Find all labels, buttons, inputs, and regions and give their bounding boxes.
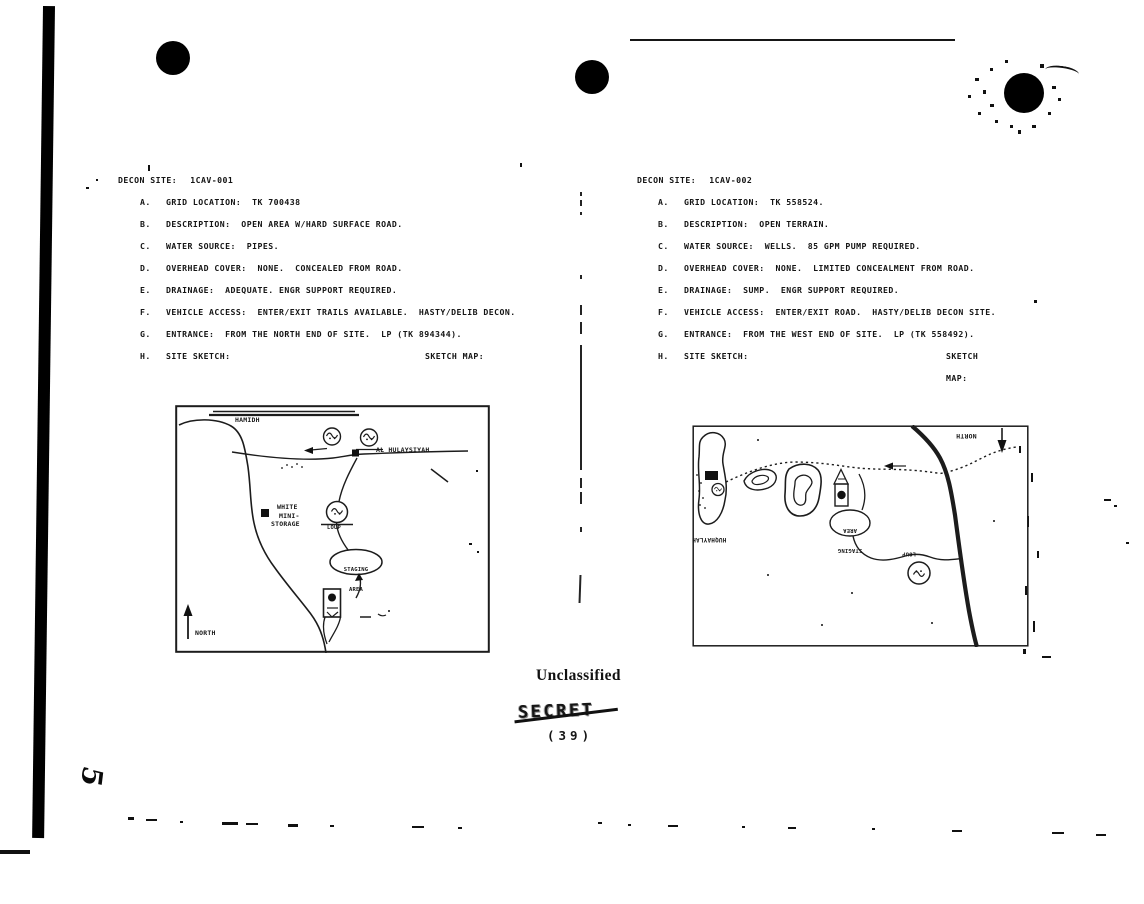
hole-punch	[1004, 73, 1044, 113]
item-letter: F.	[658, 301, 684, 323]
contour-outline	[785, 464, 821, 516]
fold-line	[579, 575, 582, 603]
site-item: C.WATER SOURCE: WELLS. 85 GPM PUMP REQUI…	[637, 235, 996, 257]
site-header-label: DECON SITE:	[118, 169, 177, 191]
item-letter: A.	[658, 191, 684, 213]
fold-line	[580, 305, 582, 315]
scan-speck	[1048, 112, 1051, 115]
direction-arrow-icon	[884, 463, 906, 470]
town-label: AL HULAYSIYAH	[376, 446, 429, 454]
handwritten-mark: 5	[74, 763, 109, 790]
town-label: HUQHAYLAH	[692, 535, 726, 543]
scan-dash	[668, 825, 678, 827]
item-letter: E.	[140, 279, 166, 301]
site-item: B.DESCRIPTION: OPEN TERRAIN.	[637, 213, 996, 235]
scan-speck	[388, 610, 390, 612]
scan-dash	[288, 824, 298, 827]
site-item: F.VEHICLE ACCESS: ENTER/EXIT TRAILS AVAI…	[118, 301, 516, 323]
site-header: DECON SITE: 1CAV-002	[637, 169, 996, 191]
site-header-value: 1CAV-001	[190, 169, 233, 191]
site-item: E.DRAINAGE: ADEQUATE. ENGR SUPPORT REQUI…	[118, 279, 516, 301]
scan-speck	[1114, 505, 1117, 507]
scan-dash	[872, 828, 875, 830]
decon-site-1cav-002: DECON SITE: 1CAV-002 A.GRID LOCATION: TK…	[637, 169, 996, 367]
item-letter: F.	[140, 301, 166, 323]
site-road	[339, 458, 357, 502]
item-text: ENTRANCE: FROM THE WEST END OF SITE. LP …	[684, 323, 974, 345]
site-item: E.DRAINAGE: SUMP. ENGR SUPPORT REQUIRED.	[637, 279, 996, 301]
scan-speck	[1034, 300, 1037, 303]
road-name-label: HAMIDH	[235, 416, 260, 424]
site-header-value: 1CAV-002	[709, 169, 752, 191]
fold-line	[580, 492, 582, 504]
site-item: G.ENTRANCE: FROM THE WEST END OF SITE. L…	[637, 323, 996, 345]
scan-dash	[1096, 834, 1106, 836]
page-rule-line	[630, 39, 955, 41]
hole-punch	[575, 60, 609, 94]
fold-line	[580, 212, 582, 215]
scan-dash	[742, 826, 745, 828]
site-item: H.SITE SKETCH:SKETCH MAP:	[118, 345, 516, 367]
fold-line	[580, 322, 582, 334]
item-text: VEHICLE ACCESS: ENTER/EXIT TRAILS AVAILA…	[166, 301, 516, 323]
site-road	[859, 474, 865, 510]
building-marker-icon	[705, 471, 718, 480]
scan-speck	[1052, 86, 1056, 89]
scan-dash	[330, 825, 334, 827]
item-letter: H.	[140, 345, 166, 367]
scan-speck	[96, 179, 98, 181]
road-scribble	[281, 463, 303, 469]
site-item: C.WATER SOURCE: PIPES.	[118, 235, 516, 257]
scan-speck	[86, 187, 89, 189]
tower-marker-icon	[834, 470, 848, 507]
site-road	[329, 617, 341, 642]
scan-dash	[0, 850, 30, 854]
struck-classification-stamp: SECRET	[518, 699, 619, 722]
site-sketch-map-1cav-002: NORTH HUQHAYLAH STAGING AREA LOUP	[692, 425, 1029, 647]
scan-speck	[968, 95, 971, 98]
dotted-trail	[726, 447, 1016, 482]
building-marker-icon	[261, 509, 269, 517]
fold-line	[580, 192, 582, 196]
item-text: WATER SOURCE: PIPES.	[166, 235, 279, 257]
item-text: GRID LOCATION: TK 700438	[166, 191, 300, 213]
scan-dash	[788, 827, 796, 829]
staging-area-line: STAGING	[828, 547, 872, 554]
scan-stroke	[378, 614, 386, 616]
scan-dash	[628, 824, 631, 826]
contour-inner	[752, 475, 768, 484]
staging-area-line: AREA	[330, 587, 382, 594]
decon-symbol-icon	[712, 484, 724, 496]
scan-speck	[1023, 649, 1026, 654]
scan-dash	[222, 822, 238, 825]
scan-speck	[983, 90, 986, 94]
fold-line	[580, 200, 582, 206]
storage-label-line: STORAGE	[271, 520, 300, 528]
item-text: SITE SKETCH:	[166, 345, 231, 367]
staging-area-label: STAGING AREA	[330, 554, 382, 606]
fold-line	[580, 345, 582, 470]
north-label: NORTH	[956, 432, 977, 440]
unclassified-stamp: Unclassified	[536, 667, 621, 685]
scan-speck	[978, 112, 981, 115]
loup-label: LOUP	[896, 550, 922, 557]
scan-dash	[952, 830, 962, 832]
scan-speck	[990, 68, 993, 71]
scan-speck	[1040, 64, 1044, 68]
terrain-speckles	[696, 474, 706, 509]
item-letter: H.	[658, 345, 684, 367]
item-letter: C.	[140, 235, 166, 257]
scan-dash	[128, 817, 134, 820]
scan-speck	[1031, 473, 1033, 482]
item-letter: B.	[658, 213, 684, 235]
scan-speck	[1037, 551, 1039, 558]
scan-speck	[1005, 60, 1008, 63]
item-text: OVERHEAD COVER: NONE. CONCEALED FROM ROA…	[166, 257, 403, 279]
decon-site-1cav-001: DECON SITE: 1CAV-001 A.GRID LOCATION: TK…	[118, 169, 516, 367]
staging-area-label: STAGING AREA	[828, 514, 872, 566]
hole-punch	[156, 41, 190, 75]
item-letter: E.	[658, 279, 684, 301]
scan-speck	[520, 163, 522, 167]
item-text: DRAINAGE: ADEQUATE. ENGR SUPPORT REQUIRE…	[166, 279, 397, 301]
staging-area-line: AREA	[828, 527, 872, 534]
scan-dash	[146, 819, 157, 821]
item-text: GRID LOCATION: TK 558524.	[684, 191, 824, 213]
item-letter: D.	[140, 257, 166, 279]
scan-dash	[246, 823, 258, 825]
site-item: H.SITE SKETCH:SKETCH MAP:	[637, 345, 996, 367]
decon-symbol-icon	[321, 502, 353, 525]
scan-stroke	[431, 469, 448, 482]
scan-dash	[180, 821, 183, 823]
scanner-edge-bar	[32, 6, 55, 838]
scan-dash	[458, 827, 462, 829]
decon-symbol-icon	[908, 562, 930, 584]
scan-dash	[598, 822, 602, 824]
item-letter: G.	[140, 323, 166, 345]
cross-road	[232, 451, 468, 459]
item-letter: G.	[658, 323, 684, 345]
site-item: B.DESCRIPTION: OPEN AREA W/HARD SURFACE …	[118, 213, 516, 235]
scan-dash	[1052, 832, 1064, 834]
building-marker-icon	[352, 450, 359, 457]
scan-speck	[1126, 542, 1129, 544]
site-item: G.ENTRANCE: FROM THE NORTH END OF SITE. …	[118, 323, 516, 345]
scan-speck	[1033, 621, 1035, 632]
direction-arrow-icon	[304, 447, 327, 454]
item-text: VEHICLE ACCESS: ENTER/EXIT ROAD. HASTY/D…	[684, 301, 996, 323]
fold-line	[580, 478, 582, 488]
site-item: A.GRID LOCATION: TK 700438	[118, 191, 516, 213]
item-text: SITE SKETCH:	[684, 345, 749, 367]
item-letter: D.	[658, 257, 684, 279]
item-text: DESCRIPTION: OPEN AREA W/HARD SURFACE RO…	[166, 213, 403, 235]
scan-speck	[995, 120, 998, 123]
scanned-document-page: DECON SITE: 1CAV-001 A.GRID LOCATION: TK…	[0, 0, 1144, 904]
scan-speck	[1058, 98, 1061, 101]
site-header-label: DECON SITE:	[637, 169, 696, 191]
site-item: F.VEHICLE ACCESS: ENTER/EXIT ROAD. HASTY…	[637, 301, 996, 323]
decon-symbol-icon	[324, 428, 341, 445]
scan-speck	[975, 78, 979, 81]
fold-line	[580, 527, 582, 532]
scan-dash	[1042, 656, 1051, 658]
north-arrow-icon	[184, 604, 193, 639]
scan-mark	[1044, 64, 1079, 81]
fold-line	[580, 275, 582, 279]
item-text: OVERHEAD COVER: NONE. LIMITED CONCEALMEN…	[684, 257, 974, 279]
site-item: A.GRID LOCATION: TK 558524.	[637, 191, 996, 213]
item-letter: A.	[140, 191, 166, 213]
scan-dash	[412, 826, 424, 828]
item-text: DRAINAGE: SUMP. ENGR SUPPORT REQUIRED.	[684, 279, 899, 301]
contour-outline	[744, 469, 776, 489]
item-text: WATER SOURCE: WELLS. 85 GPM PUMP REQUIRE…	[684, 235, 921, 257]
contour-inner	[794, 475, 812, 505]
scan-speck	[1018, 130, 1021, 134]
site-sketch-map-1cav-001: HAMIDH AL HULAYSIYAH WHITE MINI- STORAGE…	[175, 405, 490, 653]
item-letter: C.	[658, 235, 684, 257]
highway-road	[912, 426, 977, 647]
storage-label-line: WHITE	[277, 503, 298, 511]
site-header: DECON SITE: 1CAV-001	[118, 169, 516, 191]
sketch-map-label: SKETCH MAP:	[425, 345, 484, 367]
scan-speck	[1032, 125, 1036, 128]
scan-dash	[1104, 499, 1111, 501]
page-number: (39)	[547, 728, 593, 743]
staging-area-line: STAGING	[330, 567, 382, 574]
item-text: ENTRANCE: FROM THE NORTH END OF SITE. LP…	[166, 323, 462, 345]
site-item: D.OVERHEAD COVER: NONE. CONCEALED FROM R…	[118, 257, 516, 279]
scan-speck	[990, 104, 994, 107]
sketch-map-label: SKETCH MAP:	[946, 345, 996, 389]
storage-label-line: MINI-	[279, 512, 300, 520]
north-label: NORTH	[195, 629, 216, 637]
site-item: D.OVERHEAD COVER: NONE. LIMITED CONCEALM…	[637, 257, 996, 279]
scan-speck	[1010, 125, 1013, 128]
loup-label: LOUP	[327, 525, 341, 532]
item-letter: B.	[140, 213, 166, 235]
item-text: DESCRIPTION: OPEN TERRAIN.	[684, 213, 829, 235]
